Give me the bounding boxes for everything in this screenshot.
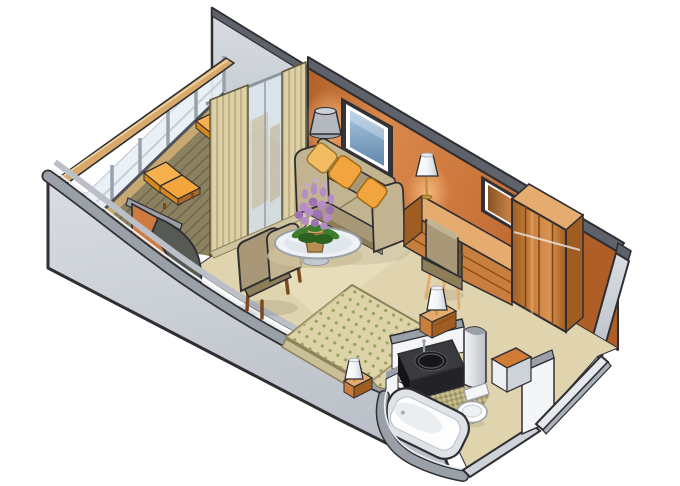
blossom [311, 219, 319, 227]
blossom-bud [323, 182, 327, 186]
blossom [323, 214, 331, 222]
stateroom-floorplan [0, 0, 680, 486]
lounger-leg [163, 203, 166, 209]
bedside-lamp-top [431, 286, 443, 290]
wardrobe-side [566, 215, 583, 332]
table-lamp-shade-top [421, 153, 433, 157]
blossom [320, 222, 328, 230]
bedside-lamp-shade [427, 288, 447, 310]
floorplan-stage [0, 0, 680, 486]
blossom [320, 187, 326, 197]
drape-left [210, 85, 248, 256]
glass-reflection [270, 123, 280, 203]
blossom [318, 201, 327, 210]
blossom [309, 198, 318, 207]
bedside-lamp-stem [436, 310, 437, 315]
leaf [313, 234, 333, 244]
chair-leg [458, 288, 459, 308]
blossom [305, 208, 314, 217]
table-lamp-foot [422, 195, 432, 199]
blossom [295, 211, 303, 219]
blossom [301, 217, 309, 225]
blossom [328, 194, 334, 204]
bath-corner-pillar [464, 327, 486, 388]
blossom [311, 183, 317, 195]
blossom [302, 189, 308, 199]
bedside-lamp-top [349, 358, 359, 362]
floor-lamp-shade-top [315, 108, 336, 115]
table-lamp-stem [426, 175, 427, 196]
blossom [326, 206, 334, 214]
blossom-bud [305, 183, 309, 187]
toilet-seat [463, 405, 482, 417]
faucet-head [422, 339, 426, 343]
blossom-bud [314, 178, 318, 182]
blossom [314, 210, 323, 219]
lounger-leg [191, 193, 194, 199]
